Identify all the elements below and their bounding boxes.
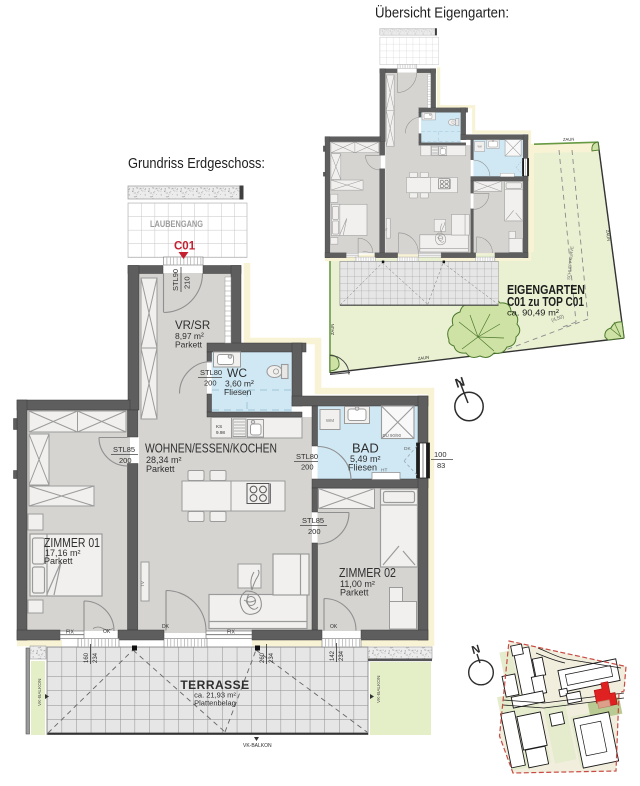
svg-text:OK: OK	[330, 624, 338, 630]
svg-text:Parkett: Parkett	[340, 588, 369, 598]
svg-text:DK: DK	[162, 624, 170, 630]
svg-text:234: 234	[93, 652, 99, 663]
svg-text:ZAUN: ZAUN	[563, 137, 575, 142]
svg-text:DK: DK	[404, 446, 411, 452]
svg-text:STL80: STL80	[200, 368, 222, 377]
svg-text:9.98: 9.98	[216, 430, 225, 435]
svg-text:STL80: STL80	[296, 452, 318, 461]
svg-text:Fliesen: Fliesen	[348, 463, 377, 473]
svg-text:200: 200	[308, 527, 321, 536]
svg-text:Übersicht Eigengarten:: Übersicht Eigengarten:	[375, 4, 509, 22]
svg-text:Parkett: Parkett	[146, 464, 175, 474]
svg-text:234: 234	[339, 650, 345, 661]
svg-text:100: 100	[434, 450, 447, 459]
svg-text:VK-BALKON: VK-BALKON	[37, 678, 43, 706]
svg-text:LAUBENGANG: LAUBENGANG	[150, 219, 203, 229]
svg-text:200: 200	[204, 379, 217, 388]
svg-text:142: 142	[330, 650, 336, 661]
svg-text:234: 234	[269, 652, 275, 663]
svg-text:VK-BALKON: VK-BALKON	[376, 675, 382, 703]
svg-text:200: 200	[119, 456, 132, 465]
svg-text:160: 160	[84, 652, 90, 663]
svg-text:260: 260	[260, 652, 266, 663]
svg-text:210: 210	[183, 276, 192, 289]
svg-text:Parkett: Parkett	[175, 340, 203, 350]
svg-text:ca. 90,49 m²: ca. 90,49 m²	[507, 308, 559, 318]
svg-text:Plattenbelag: Plattenbelag	[194, 699, 236, 708]
svg-text:ZAUN: ZAUN	[330, 324, 335, 335]
svg-text:83: 83	[437, 461, 445, 470]
svg-text:STL90: STL90	[171, 269, 180, 291]
svg-text:OK: OK	[103, 629, 111, 635]
svg-text:FIX: FIX	[227, 630, 235, 636]
svg-text:VK-BALKON: VK-BALKON	[243, 743, 272, 749]
svg-text:C01: C01	[174, 241, 196, 253]
svg-text:WOHNEN/ESSEN/KOCHEN: WOHNEN/ESSEN/KOCHEN	[145, 442, 277, 456]
svg-text:Fliesen: Fliesen	[224, 387, 252, 397]
svg-text:Parkett: Parkett	[44, 556, 73, 566]
svg-text:STL85: STL85	[302, 516, 324, 525]
svg-text:STL85: STL85	[113, 445, 135, 454]
svg-text:DU 90/90: DU 90/90	[383, 433, 402, 438]
svg-text:Grundriss Erdgeschoss:: Grundriss Erdgeschoss:	[128, 156, 265, 172]
svg-text:FIX: FIX	[66, 630, 74, 636]
svg-text:ZIMMER 02: ZIMMER 02	[339, 566, 396, 580]
svg-text:HT: HT	[381, 468, 387, 474]
svg-text:200: 200	[301, 463, 314, 472]
svg-text:KS: KS	[216, 424, 222, 429]
